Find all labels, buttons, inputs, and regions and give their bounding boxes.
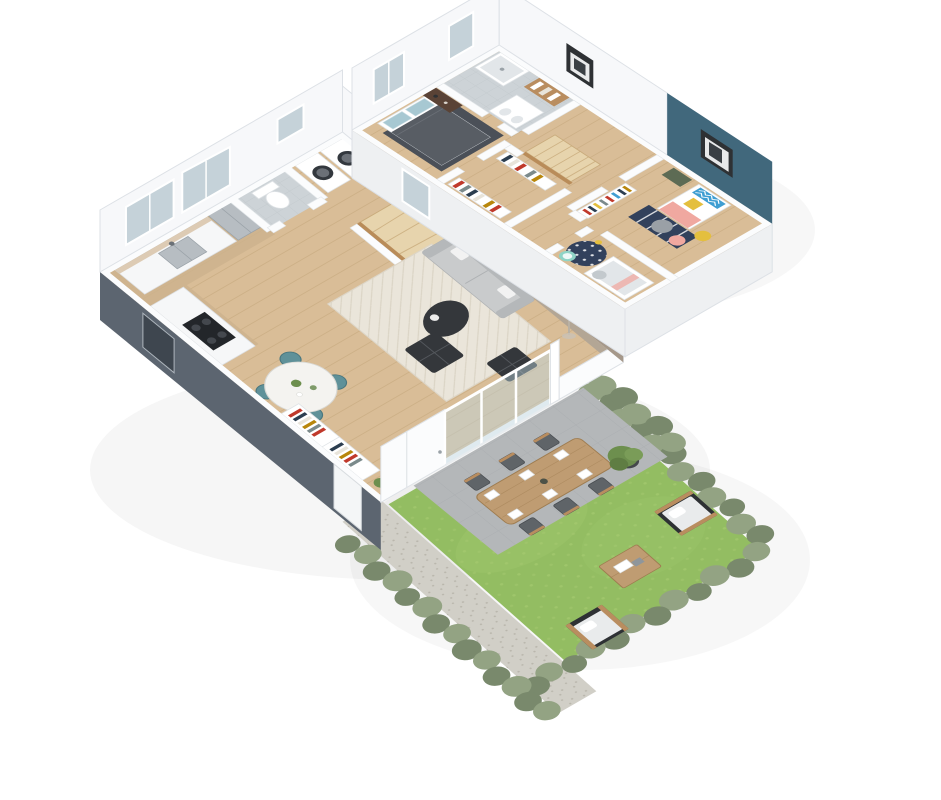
wall-post: [551, 339, 560, 404]
floorplan-canvas: [0, 0, 941, 800]
floorplan-render: [0, 0, 941, 800]
door-handle: [438, 450, 442, 454]
